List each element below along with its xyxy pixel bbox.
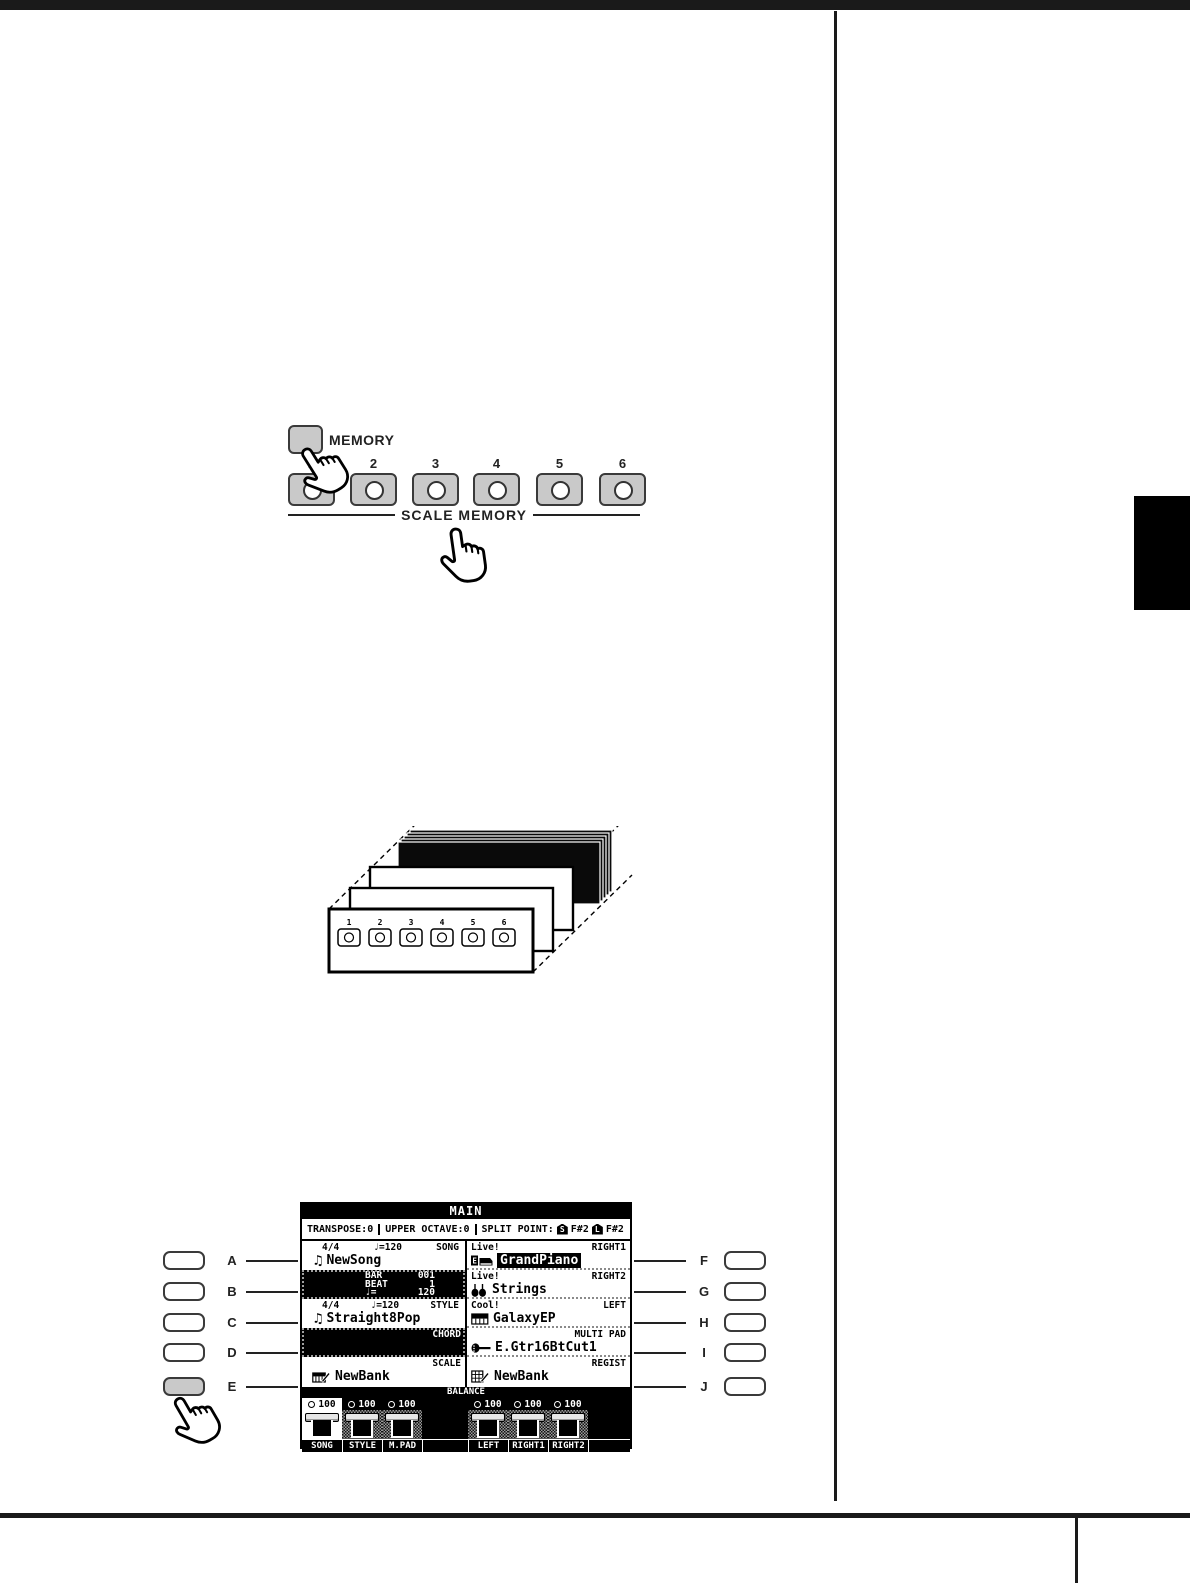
level-dot-icon [474, 1401, 481, 1408]
pointing-hand-icon [431, 520, 499, 601]
display-button-b[interactable] [163, 1282, 205, 1301]
song-section-label: SONG [436, 1242, 459, 1253]
left-voice-name: GalaxyEP [493, 1311, 556, 1326]
fader-body [351, 1420, 373, 1438]
regist-bank-name: NewBank [494, 1369, 549, 1384]
right2-voice-section[interactable]: Live! RIGHT2 Strings [467, 1270, 630, 1299]
scale-memory-group: SCALE MEMORY [288, 507, 640, 523]
song-meter: 4/4 [322, 1242, 339, 1253]
tempo-label: ♩= [365, 1289, 376, 1298]
led-lamp [500, 933, 509, 942]
display-button-i[interactable] [724, 1343, 766, 1362]
style-note-icon: ♫ [314, 1312, 322, 1326]
led-lamp [376, 933, 385, 942]
multipad-bank-name: E.Gtr16BtCut1 [495, 1340, 597, 1355]
balance-label-song: SONG [302, 1439, 342, 1452]
level-dot-icon [554, 1401, 561, 1408]
stack-button-6-number: 6 [502, 918, 507, 927]
balance-fader-left[interactable]: 100 [468, 1398, 508, 1439]
multipad-section[interactable]: MULTI PAD E.Gtr16BtCut1 [467, 1328, 630, 1357]
led-lamp [438, 933, 447, 942]
right2-section-label: RIGHT2 [592, 1271, 626, 1282]
balance-value-mpad: 100 [398, 1399, 415, 1410]
chapter-edge-tab [1134, 496, 1190, 610]
scale-memory-5-number: 5 [536, 456, 583, 471]
manual-page: MEMORY 1 2 3 4 5 6 SCALE MEMORY [0, 0, 1190, 1583]
display-button-d[interactable] [163, 1343, 205, 1362]
balance-label-spacer [588, 1439, 630, 1452]
led-lamp [614, 481, 633, 500]
stack-button-1-number: 1 [347, 918, 352, 927]
balance-label-right1: RIGHT1 [508, 1439, 548, 1452]
balance-faders: 100 100 100 100 100 [302, 1398, 630, 1439]
chord-section: CHORD [302, 1328, 465, 1357]
main-display: MAIN TRANSPOSE:0 UPPER OCTAVE:0 SPLIT PO… [300, 1202, 632, 1449]
balance-spacer [588, 1398, 630, 1439]
multipad-section-label: MULTI PAD [575, 1329, 626, 1340]
fader-body [391, 1420, 413, 1438]
split-left-tag-icon: L [592, 1224, 603, 1235]
right1-voice-tag: Live! [471, 1242, 500, 1253]
balance-label-right2: RIGHT2 [548, 1439, 588, 1452]
left-voice-tag: Cool! [471, 1300, 500, 1311]
button-i-label: I [694, 1345, 714, 1360]
balance-fader-right1[interactable]: 100 [508, 1398, 548, 1439]
fader-body [311, 1420, 333, 1438]
display-status-bar: TRANSPOSE:0 UPPER OCTAVE:0 SPLIT POINT: … [302, 1219, 630, 1241]
lead-line [634, 1386, 686, 1388]
button-d-label: D [222, 1345, 242, 1360]
balance-value-left: 100 [484, 1399, 501, 1410]
balance-label-left: LEFT [468, 1439, 508, 1452]
transport-section: BAR001 BEAT1 ♩=120 [302, 1270, 465, 1299]
stack-button-3-number: 3 [409, 918, 414, 927]
regist-section[interactable]: REGIST NewBank [467, 1357, 630, 1387]
style-section-label: STYLE [430, 1300, 459, 1311]
lead-line [634, 1291, 686, 1293]
display-button-h[interactable] [724, 1313, 766, 1332]
fader-body [557, 1420, 579, 1438]
right1-voice-name: GrandPiano [497, 1253, 581, 1268]
lead-line [246, 1291, 298, 1293]
scale-memory-4-button[interactable] [473, 473, 520, 506]
display-button-g[interactable] [724, 1282, 766, 1301]
bracket-line [533, 514, 640, 516]
scale-keyboard-pencil-icon [312, 1370, 331, 1383]
balance-label-style: STYLE [342, 1439, 382, 1452]
song-note-icon: ♫ [314, 1254, 322, 1268]
chord-section-label: CHORD [306, 1329, 461, 1340]
right2-voice-name: Strings [492, 1282, 547, 1297]
song-name: NewSong [326, 1253, 381, 1268]
display-button-a[interactable] [163, 1251, 205, 1270]
right2-voice-tag: Live! [471, 1271, 500, 1282]
registration-pencil-icon [471, 1370, 490, 1383]
button-g-label: G [694, 1284, 714, 1299]
scale-memory-3-number: 3 [412, 456, 459, 471]
electric-piano-keys-icon [471, 1313, 489, 1325]
scale-section[interactable]: SCALE NewBank [302, 1357, 465, 1387]
bracket-line [288, 514, 395, 516]
scale-memory-4-number: 4 [473, 456, 520, 471]
scale-memory-2-number: 2 [350, 456, 397, 471]
display-button-f[interactable] [724, 1251, 766, 1270]
strings-icon [471, 1283, 488, 1297]
scale-memory-6-number: 6 [599, 456, 646, 471]
balance-value-right1: 100 [524, 1399, 541, 1410]
fader-body [517, 1420, 539, 1438]
balance-fader-mpad[interactable]: 100 [382, 1398, 422, 1439]
scale-memory-5-button[interactable] [536, 473, 583, 506]
button-j-label: J [694, 1379, 714, 1394]
display-button-c[interactable] [163, 1313, 205, 1332]
right1-section-label: RIGHT1 [592, 1242, 626, 1253]
transpose-status: TRANSPOSE:0 [302, 1224, 378, 1235]
balance-value-style: 100 [358, 1399, 375, 1410]
right1-voice-section[interactable]: Live! RIGHT1 E GrandPiano [467, 1241, 630, 1270]
led-lamp [551, 481, 570, 500]
split-left-value: F#2 [606, 1224, 624, 1235]
balance-fader-right2[interactable]: 100 [548, 1398, 588, 1439]
split-point-label: SPLIT POINT: [482, 1224, 554, 1235]
led-lamp [407, 933, 416, 942]
upper-octave-status: UPPER OCTAVE:0 [378, 1224, 474, 1235]
button-b-label: B [222, 1284, 242, 1299]
song-tempo: ♩=120 [373, 1242, 402, 1253]
balance-title: BALANCE [302, 1387, 630, 1398]
display-button-j[interactable] [724, 1377, 766, 1396]
column-divider-rule [834, 11, 837, 1501]
lead-line [246, 1322, 298, 1324]
button-h-label: H [694, 1315, 714, 1330]
tempo-value: 120 [418, 1289, 435, 1298]
page-top-rule [0, 0, 1190, 10]
scale-bank-name: NewBank [335, 1369, 390, 1384]
button-a-label: A [222, 1253, 242, 1268]
button-c-label: C [222, 1315, 242, 1330]
split-style-tag-icon: S [557, 1224, 568, 1235]
button-e-label: E [222, 1379, 242, 1394]
grand-piano-icon: E [471, 1254, 493, 1267]
left-section-label: LEFT [603, 1300, 626, 1311]
led-lamp [427, 481, 446, 500]
led-lamp [345, 933, 354, 942]
fader-body [477, 1420, 499, 1438]
stack-button-2-number: 2 [378, 918, 383, 927]
left-voice-section[interactable]: Cool! LEFT GalaxyEP [467, 1299, 630, 1328]
display-title: MAIN [302, 1204, 630, 1219]
guitar-icon [471, 1342, 491, 1354]
balance-label-mpad: M.PAD [382, 1439, 422, 1452]
footer-divider-rule [1075, 1518, 1078, 1583]
button-f-label: F [694, 1253, 714, 1268]
style-meter: 4/4 [322, 1300, 339, 1311]
balance-section: BALANCE 100 100 100 100 [302, 1387, 630, 1452]
balance-value-right2: 100 [564, 1399, 581, 1410]
stack-button-5-number: 5 [471, 918, 476, 927]
level-dot-icon [308, 1401, 315, 1408]
lead-line [246, 1260, 298, 1262]
split-point-status: SPLIT POINT: S F#2 L F#2 [475, 1224, 629, 1235]
led-lamp [488, 481, 507, 500]
led-lamp [469, 933, 478, 942]
level-dot-icon [388, 1401, 395, 1408]
lead-line [246, 1386, 298, 1388]
scale-memory-3-button[interactable] [412, 473, 459, 506]
scale-section-label: SCALE [432, 1358, 461, 1369]
song-section[interactable]: 4/4 ♩=120 SONG ♫ NewSong [302, 1241, 465, 1270]
stack-button-4-number: 4 [440, 918, 445, 927]
lead-line [634, 1322, 686, 1324]
balance-fader-style[interactable]: 100 [342, 1398, 382, 1439]
level-dot-icon [514, 1401, 521, 1408]
level-dot-icon [348, 1401, 355, 1408]
style-section[interactable]: 4/4 ♩=120 STYLE ♫ Straight8Pop [302, 1299, 465, 1328]
lead-line [634, 1352, 686, 1354]
lead-line [634, 1260, 686, 1262]
svg-text:E: E [472, 1257, 477, 1266]
balance-spacer [422, 1398, 468, 1439]
memory-bank-stack-diagram: 1 2 3 4 5 6 [322, 826, 642, 978]
balance-fader-song[interactable]: 100 [302, 1398, 342, 1439]
style-tempo: ♩=120 [370, 1300, 399, 1311]
style-name: Straight8Pop [326, 1311, 420, 1326]
footer-rule [0, 1513, 1190, 1518]
balance-label-spacer [422, 1439, 468, 1452]
split-style-value: F#2 [571, 1224, 589, 1235]
balance-value-song: 100 [318, 1399, 335, 1410]
scale-memory-group-label: SCALE MEMORY [395, 507, 533, 523]
balance-labels: SONG STYLE M.PAD LEFT RIGHT1 RIGHT2 [302, 1439, 630, 1452]
scale-memory-6-button[interactable] [599, 473, 646, 506]
lead-line [246, 1352, 298, 1354]
regist-section-label: REGIST [592, 1358, 626, 1369]
